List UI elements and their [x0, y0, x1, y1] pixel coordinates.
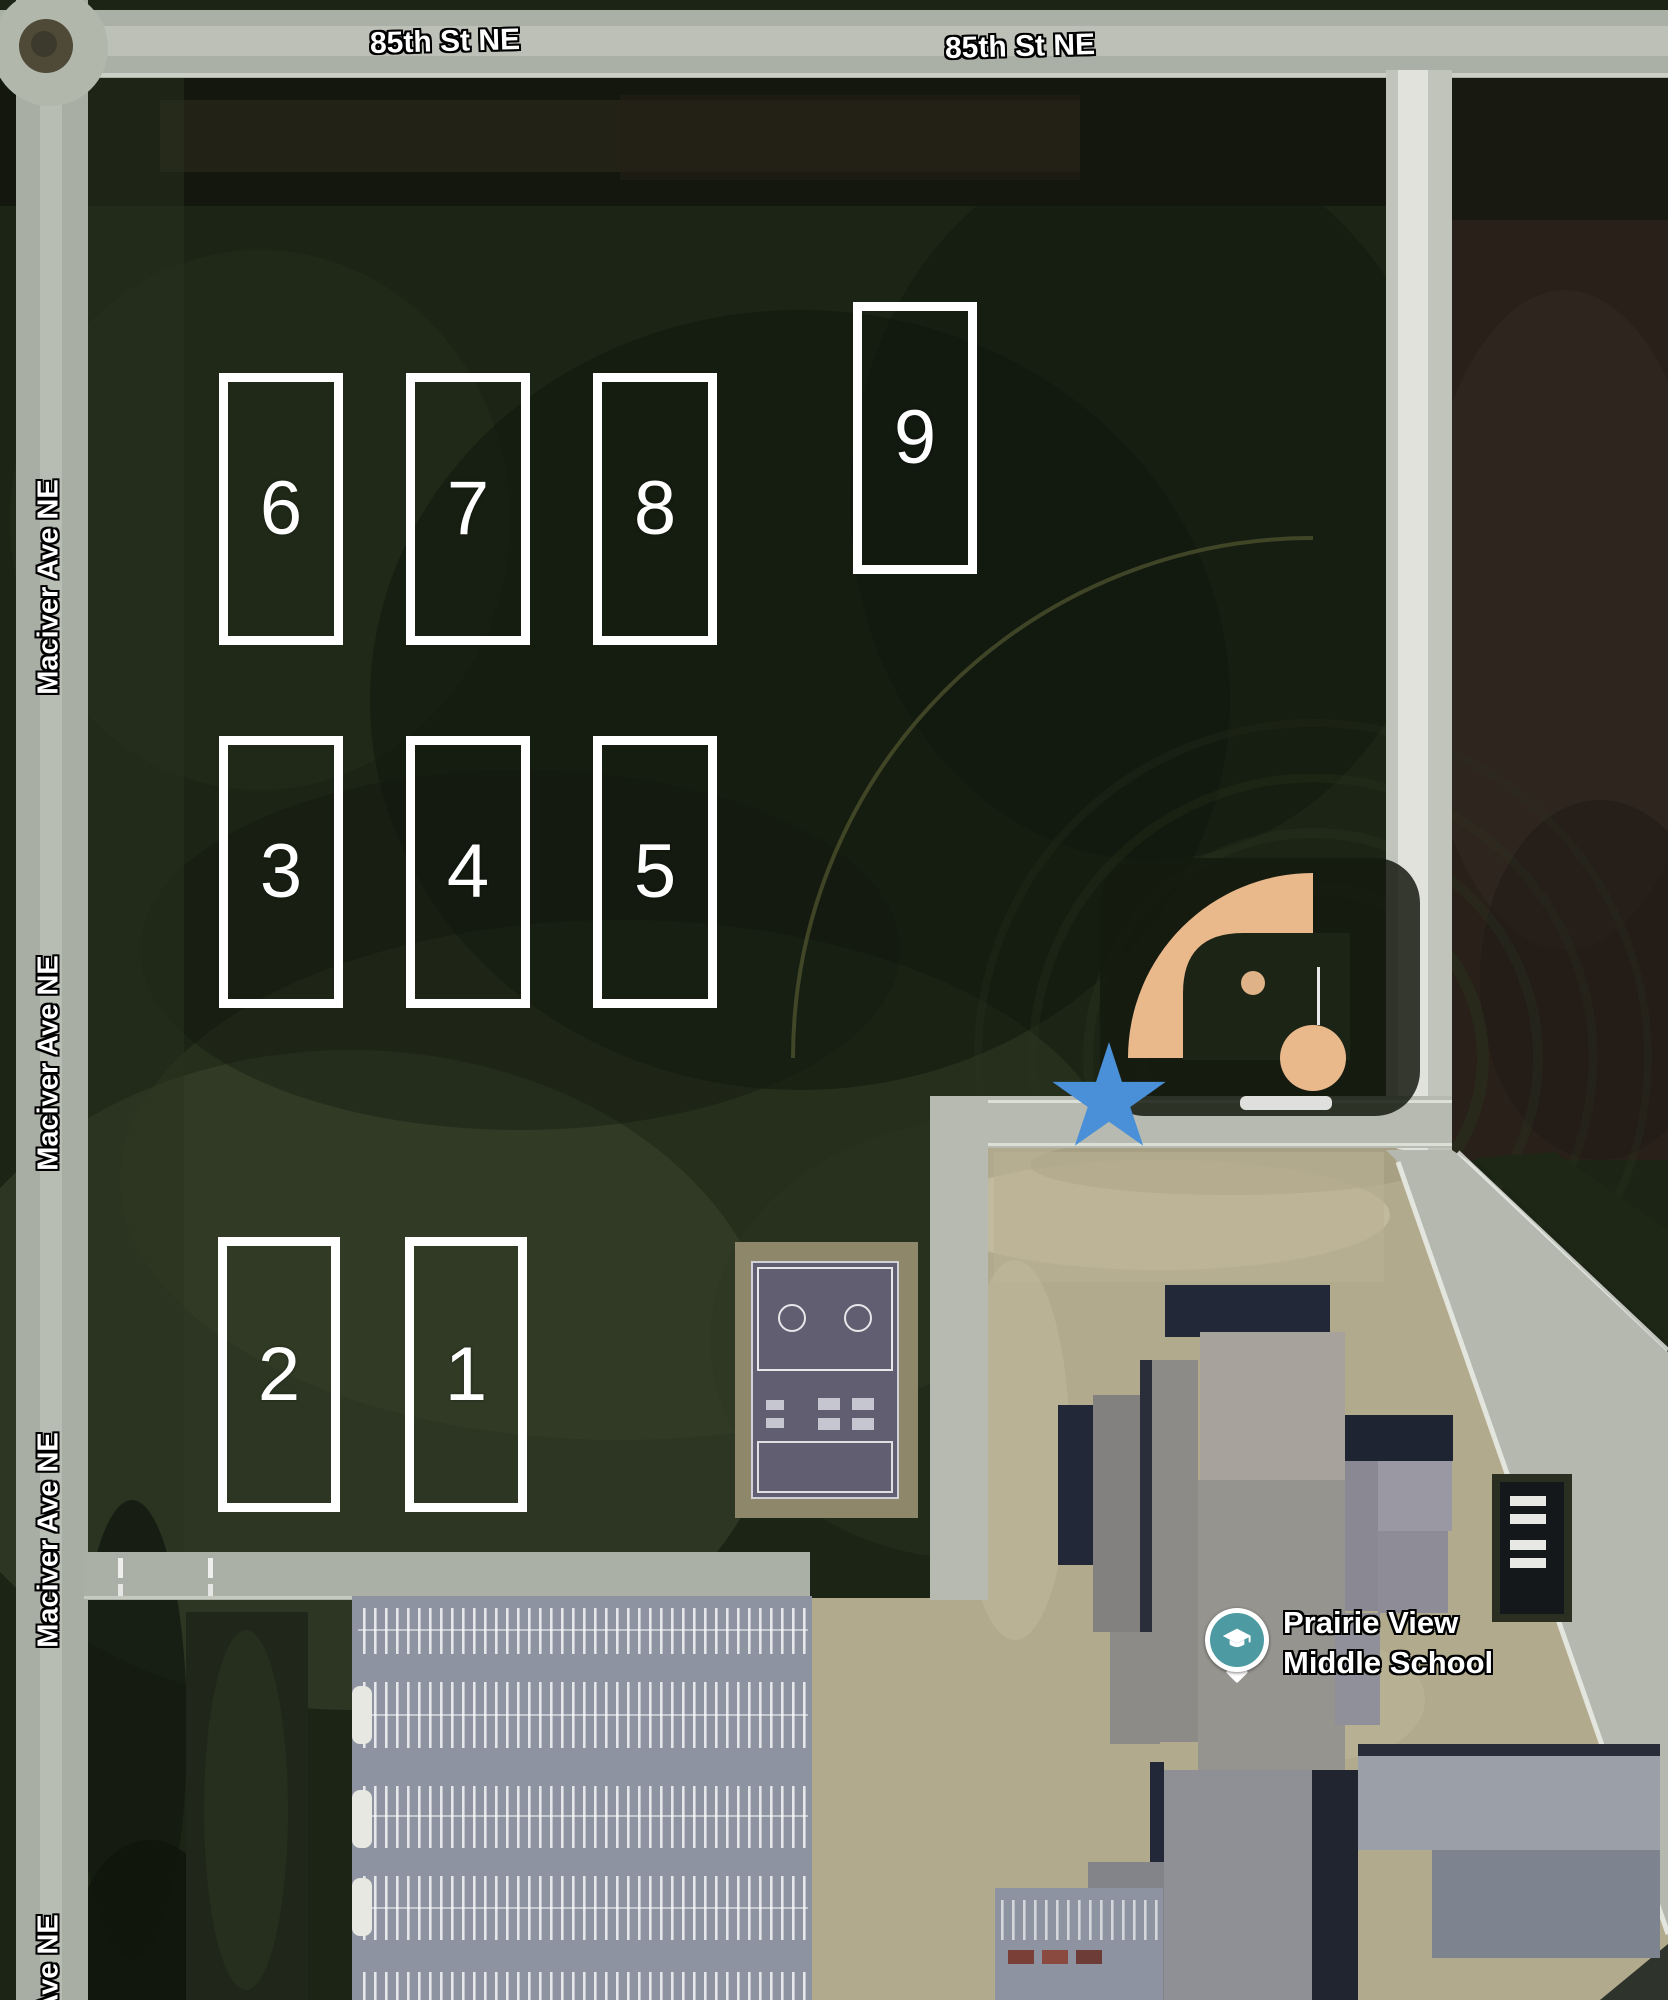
pin-circle [1205, 1608, 1269, 1672]
street-label-maciver-ave-ne-1: Maciver Ave NE [33, 479, 66, 694]
field-number: 7 [447, 471, 489, 547]
field-marker-1: 1 [405, 1237, 527, 1512]
school-name-line2: Middle School [1283, 1643, 1493, 1683]
field-marker-2: 2 [218, 1237, 340, 1512]
field-marker-9: 9 [853, 302, 977, 574]
street-label-85th-st-ne-2: 85th St NE [945, 28, 1096, 66]
school-name: Prairie View Middle School [1283, 1603, 1493, 1683]
field-marker-6: 6 [219, 373, 343, 645]
street-label-85th-st-ne-1: 85th St NE [370, 23, 521, 61]
field-marker-3: 3 [219, 736, 343, 1008]
graduation-cap-icon [1210, 1613, 1264, 1667]
field-marker-7: 7 [406, 373, 530, 645]
field-marker-4: 4 [406, 736, 530, 1008]
school-poi-label: Prairie View Middle School [1205, 1608, 1493, 1683]
field-marker-8: 8 [593, 373, 717, 645]
field-number: 9 [894, 400, 936, 476]
street-label-maciver-ave-ne-3: Maciver Ave NE [33, 1432, 66, 1647]
field-number: 8 [634, 471, 676, 547]
street-label-maciver-ave-ne-4: Maciver Ave NE [33, 1914, 66, 2000]
school-name-line1: Prairie View [1283, 1603, 1493, 1643]
field-number: 3 [260, 834, 302, 910]
field-marker-5: 5 [593, 736, 717, 1008]
field-number: 2 [258, 1337, 300, 1413]
field-number: 6 [260, 471, 302, 547]
field-number: 4 [447, 834, 489, 910]
satellite-field-map[interactable]: 6 7 8 9 3 4 5 2 1 85th St NE 85th St NE … [0, 0, 1668, 2000]
field-number: 1 [445, 1337, 487, 1413]
field-number: 5 [634, 834, 676, 910]
school-pin-icon [1205, 1608, 1269, 1672]
street-label-maciver-ave-ne-2: Maciver Ave NE [33, 955, 66, 1170]
